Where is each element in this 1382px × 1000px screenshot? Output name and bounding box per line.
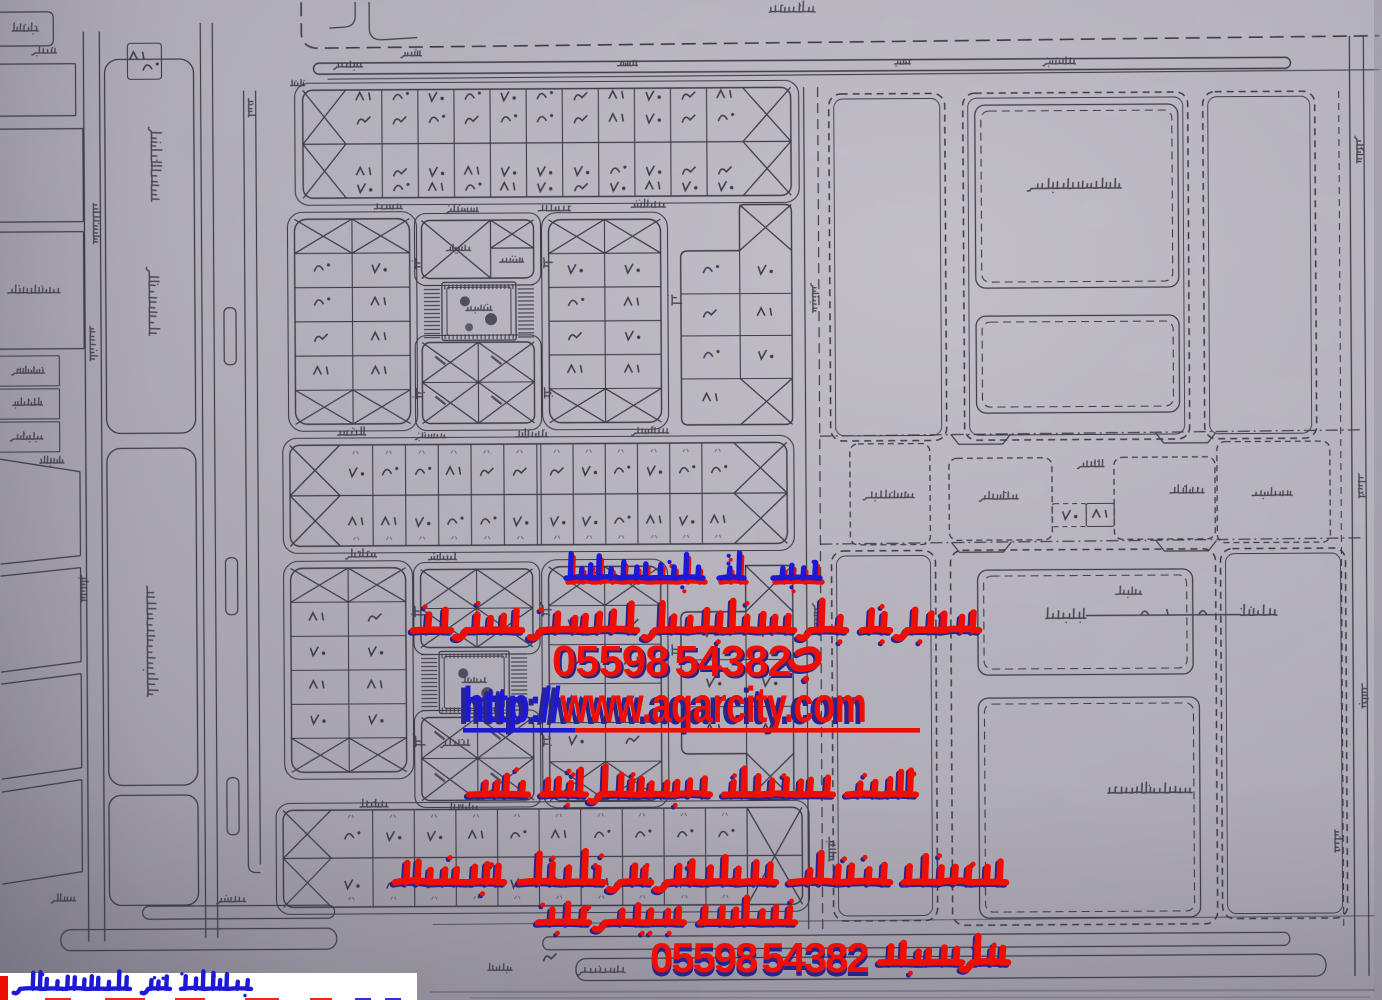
svg-text:http://www.aqarcity.com: http://www.aqarcity.com	[463, 678, 867, 733]
